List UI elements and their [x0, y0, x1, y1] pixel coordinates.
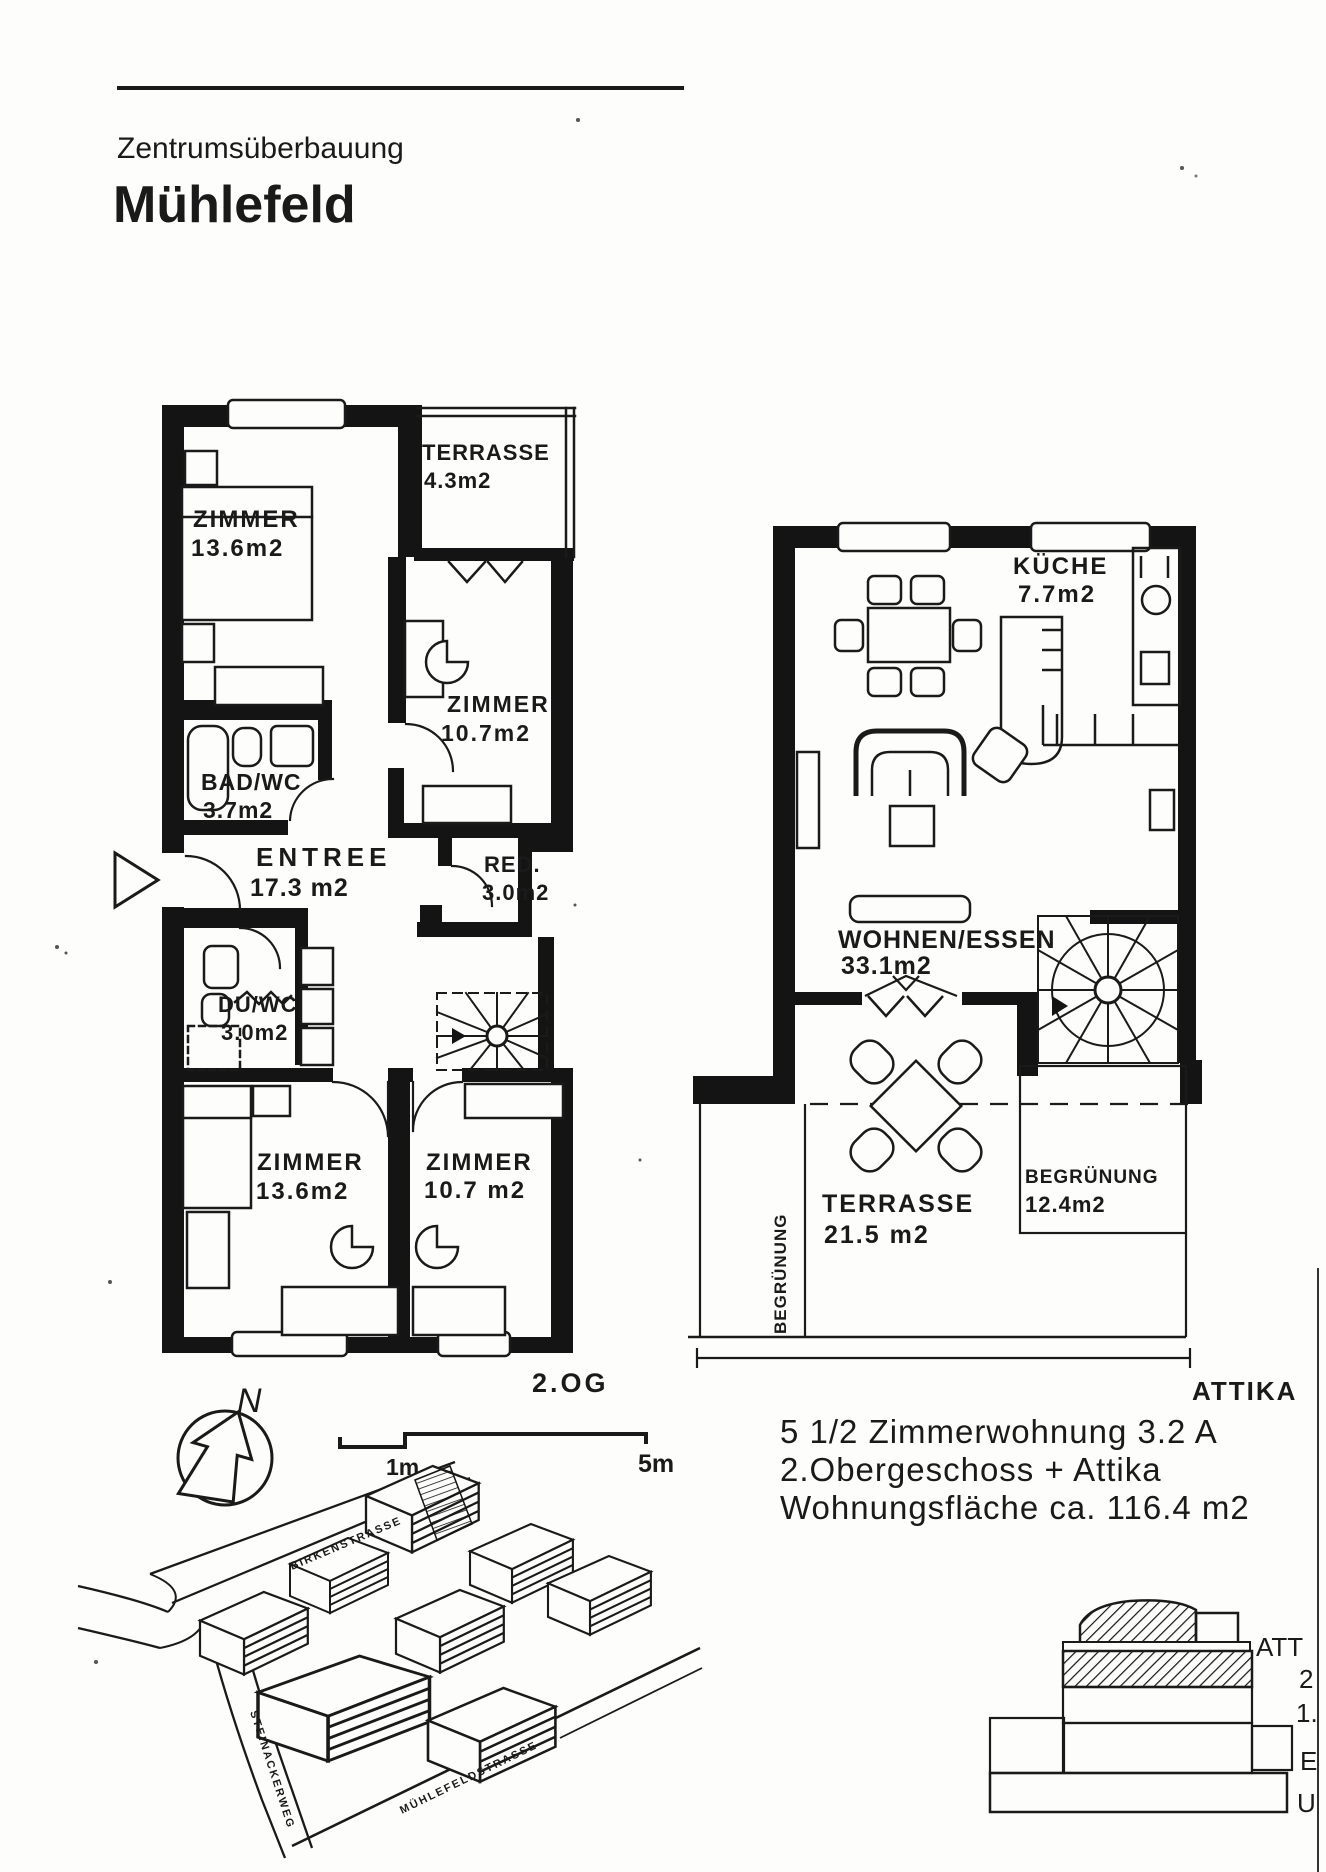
- section-eg-right: [1252, 1726, 1292, 1770]
- chair-icon: [868, 668, 901, 696]
- scale-far-label: 5m: [638, 1450, 674, 1478]
- bed: [465, 1084, 563, 1118]
- room-label: WOHNEN/ESSEN: [838, 926, 1056, 954]
- room-label-vertical: BEGRÜNUNG: [771, 1214, 790, 1334]
- room-area: 7.7m2: [1018, 581, 1096, 608]
- north-arrow: N: [178, 1382, 272, 1510]
- sink-icon: [271, 726, 313, 766]
- section-level2: [1063, 1651, 1252, 1687]
- appliance: [1141, 652, 1169, 684]
- annotation-line3: Wohnungsfläche ca. 116.4 m2: [780, 1489, 1250, 1526]
- coffee-table: [890, 806, 934, 846]
- bed: [183, 1086, 251, 1208]
- room-area: 33.1m2: [841, 952, 932, 980]
- room-label: KÜCHE: [1013, 553, 1108, 580]
- room-label: ENTREE: [256, 842, 391, 872]
- bed: [423, 786, 511, 823]
- room-area: 3.0m2: [482, 880, 549, 905]
- sink-icon: [204, 946, 238, 988]
- toilet-icon: [233, 728, 261, 766]
- chair-icon: [911, 668, 944, 696]
- room-area: 3.0m2: [221, 1020, 288, 1045]
- chair-icon: [331, 1226, 373, 1268]
- header-rule: [117, 86, 684, 90]
- section-eg-left: [990, 1718, 1064, 1773]
- sideboard: [1150, 790, 1174, 830]
- chair-icon: [868, 576, 901, 604]
- cabinet: [301, 989, 333, 1024]
- room-label: TERRASSE: [822, 1190, 974, 1218]
- window-icon: [228, 400, 345, 428]
- room-label: BAD/WC: [201, 769, 302, 795]
- room-area: 12.4m2: [1025, 1192, 1106, 1217]
- desk: [413, 1287, 505, 1335]
- entry-gap: [158, 853, 188, 907]
- section-level1: [1063, 1687, 1252, 1723]
- building-block: [200, 1592, 308, 1675]
- chair-icon: [953, 620, 981, 651]
- room-area: 17.3 m2: [250, 874, 349, 902]
- room-label: BEGRÜNUNG: [1025, 1167, 1159, 1188]
- dresser: [215, 667, 323, 705]
- level-label-attika: ATTIKA: [1192, 1376, 1297, 1406]
- site-map: BIRKENSTRASSE STEINACKERWEG MÜHLEFELDSTR…: [78, 1462, 702, 1858]
- scanned-floorplan-page: Zentrumsüberbauung Mühlefeld: [0, 0, 1326, 1872]
- armchair-icon: [969, 724, 1030, 785]
- floor-label-2og: 2.OG: [532, 1368, 609, 1398]
- nightstand: [182, 624, 214, 662]
- stair-direction-arrow: [1052, 996, 1068, 1016]
- section-eg: [1063, 1723, 1252, 1773]
- chair-icon: [416, 1226, 458, 1268]
- chair-icon: [911, 576, 944, 604]
- north-label: N: [237, 1382, 262, 1420]
- section-label: ATT: [1256, 1632, 1303, 1662]
- shelf: [187, 1212, 229, 1288]
- room-label: RED.: [484, 852, 541, 877]
- section-label: 2: [1299, 1664, 1313, 1694]
- chair-icon: [932, 1034, 987, 1089]
- chair-icon: [426, 641, 468, 683]
- room-label: ZIMMER: [426, 1149, 533, 1176]
- desk: [282, 1287, 398, 1335]
- project-type: Zentrumsüberbauung: [117, 132, 404, 165]
- plan-attika: KÜCHE 7.7m2 WOHNEN/ESSEN 33.1m2 TERRASSE…: [688, 523, 1297, 1406]
- terrace-furniture: [844, 1034, 987, 1177]
- chair-icon: [844, 1034, 899, 1089]
- living-furniture: [797, 576, 1174, 922]
- nightstand: [185, 451, 217, 485]
- sofa-inner: [872, 752, 948, 796]
- room-label: TERRASSE: [422, 440, 550, 465]
- scale-bar-line: [340, 1434, 646, 1447]
- room-area: 10.7 m2: [424, 1177, 526, 1204]
- page-title: Mühlefeld: [113, 176, 356, 234]
- sideboard: [797, 752, 819, 848]
- room-area: 13.6m2: [191, 535, 284, 562]
- chair-icon: [844, 1122, 899, 1177]
- balcony-door-icon: [449, 562, 522, 582]
- chair-icon: [835, 620, 863, 651]
- section-label: 1.: [1296, 1698, 1318, 1728]
- dining-table: [868, 608, 950, 662]
- room-area: 3.7m2: [203, 797, 273, 823]
- room-label: ZIMMER: [447, 691, 550, 717]
- scale-bar: 1m 5m: [340, 1434, 674, 1480]
- annotation-block: 5 1/2 Zimmerwohnung 3.2 A 2.Obergeschoss…: [780, 1413, 1250, 1526]
- spiral-stair-attika: [1038, 916, 1178, 1063]
- room-label: ZIMMER: [193, 506, 300, 533]
- room-area: 21.5 m2: [824, 1221, 930, 1249]
- room-label: DU/WC: [218, 992, 298, 1017]
- entry-arrow-icon: [115, 853, 158, 907]
- window-icon: [838, 523, 950, 551]
- section-slab: [1063, 1642, 1250, 1651]
- stair-direction-arrow: [452, 1028, 466, 1044]
- room-labels-attika: KÜCHE 7.7m2 WOHNEN/ESSEN 33.1m2 TERRASSE…: [771, 553, 1297, 1406]
- annotation-line2: 2.Obergeschoss + Attika: [780, 1451, 1162, 1488]
- room-label: ZIMMER: [257, 1149, 364, 1176]
- section-label: E: [1300, 1746, 1317, 1776]
- section-ug: [990, 1773, 1287, 1812]
- kitchen-sink-icon: [1142, 586, 1170, 614]
- section-label: U: [1297, 1788, 1316, 1818]
- floorplan-drawing: Zentrumsüberbauung Mühlefeld: [0, 0, 1326, 1872]
- annotation-line1: 5 1/2 Zimmerwohnung 3.2 A: [780, 1413, 1218, 1450]
- cabinet: [301, 948, 333, 985]
- building-block: [396, 1590, 504, 1673]
- chair-icon: [932, 1122, 987, 1177]
- room-area: 4.3m2: [424, 468, 491, 493]
- room-area: 10.7m2: [441, 720, 531, 746]
- cabinet: [301, 1028, 333, 1065]
- room-area: 13.6m2: [256, 1178, 349, 1205]
- plan-2og: TERRASSE 4.3m2 ZIMMER 13.6m2 ZIMMER 10.7…: [115, 400, 609, 1398]
- lowboard: [850, 896, 970, 922]
- building-block: [258, 1656, 430, 1761]
- building-section: ATT 2 1. E U: [990, 1600, 1318, 1818]
- nightstand: [253, 1086, 290, 1116]
- header: Zentrumsüberbauung Mühlefeld: [113, 86, 1198, 234]
- spiral-stair-2og: [437, 993, 547, 1070]
